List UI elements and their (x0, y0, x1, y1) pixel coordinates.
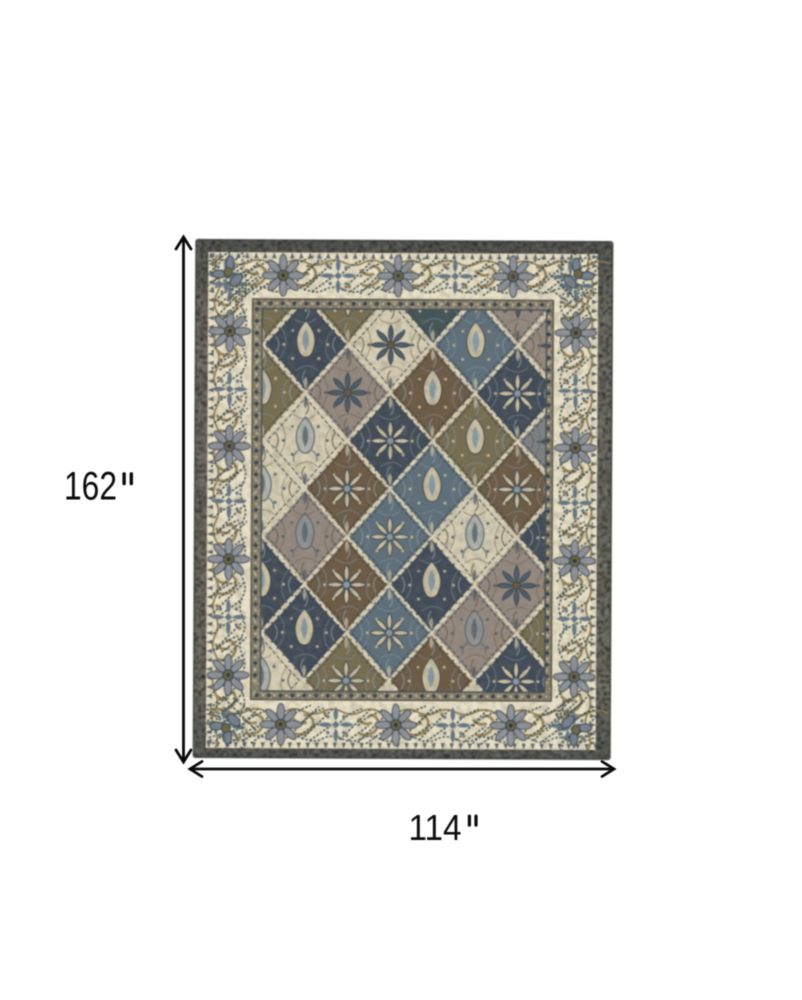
svg-text:114: 114 (409, 807, 462, 848)
svg-text:162: 162 (64, 465, 117, 509)
